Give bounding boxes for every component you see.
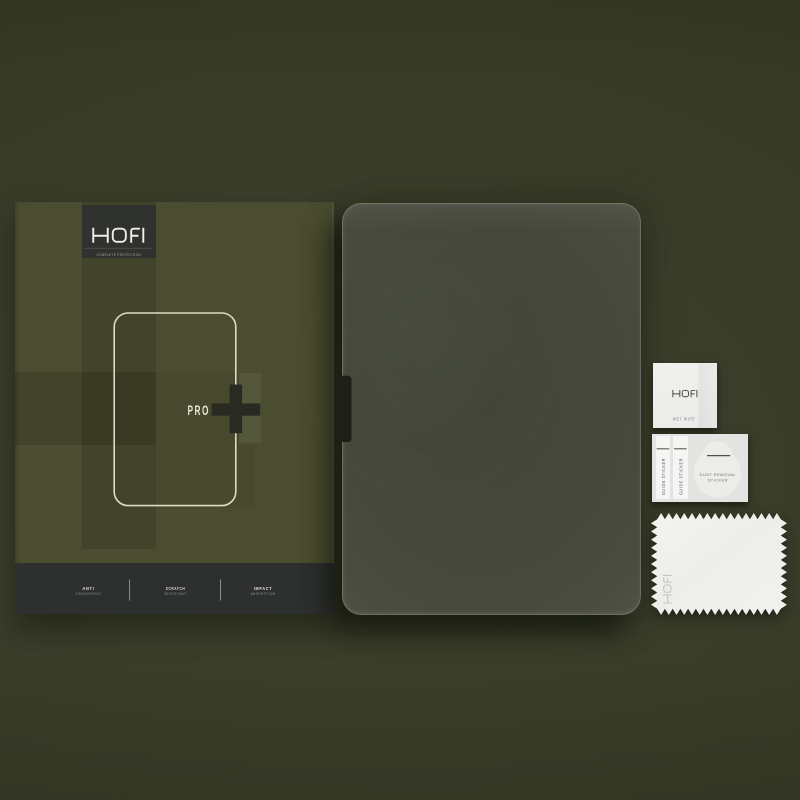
svg-text:DUST REMOVAL: DUST REMOVAL: [700, 472, 737, 477]
svg-text:GUIDE STICKER: GUIDE STICKER: [661, 458, 666, 495]
svg-text:IMPACT: IMPACT: [254, 586, 273, 591]
svg-text:SCRATCH: SCRATCH: [166, 586, 186, 591]
svg-text:STICKER: STICKER: [708, 477, 729, 482]
svg-text:GUIDE STICKER: GUIDE STICKER: [678, 458, 683, 495]
svg-text:COMPLETE PROTECTION: COMPLETE PROTECTION: [96, 253, 141, 257]
svg-text:ABSORPTION: ABSORPTION: [251, 591, 276, 596]
svg-text:ANTI: ANTI: [82, 586, 94, 591]
svg-text:PRO: PRO: [188, 403, 211, 419]
svg-text:FINGERPRINT: FINGERPRINT: [76, 591, 102, 596]
svg-text:WET WIPE: WET WIPE: [673, 416, 696, 421]
svg-text:RESISTANT: RESISTANT: [165, 591, 187, 596]
